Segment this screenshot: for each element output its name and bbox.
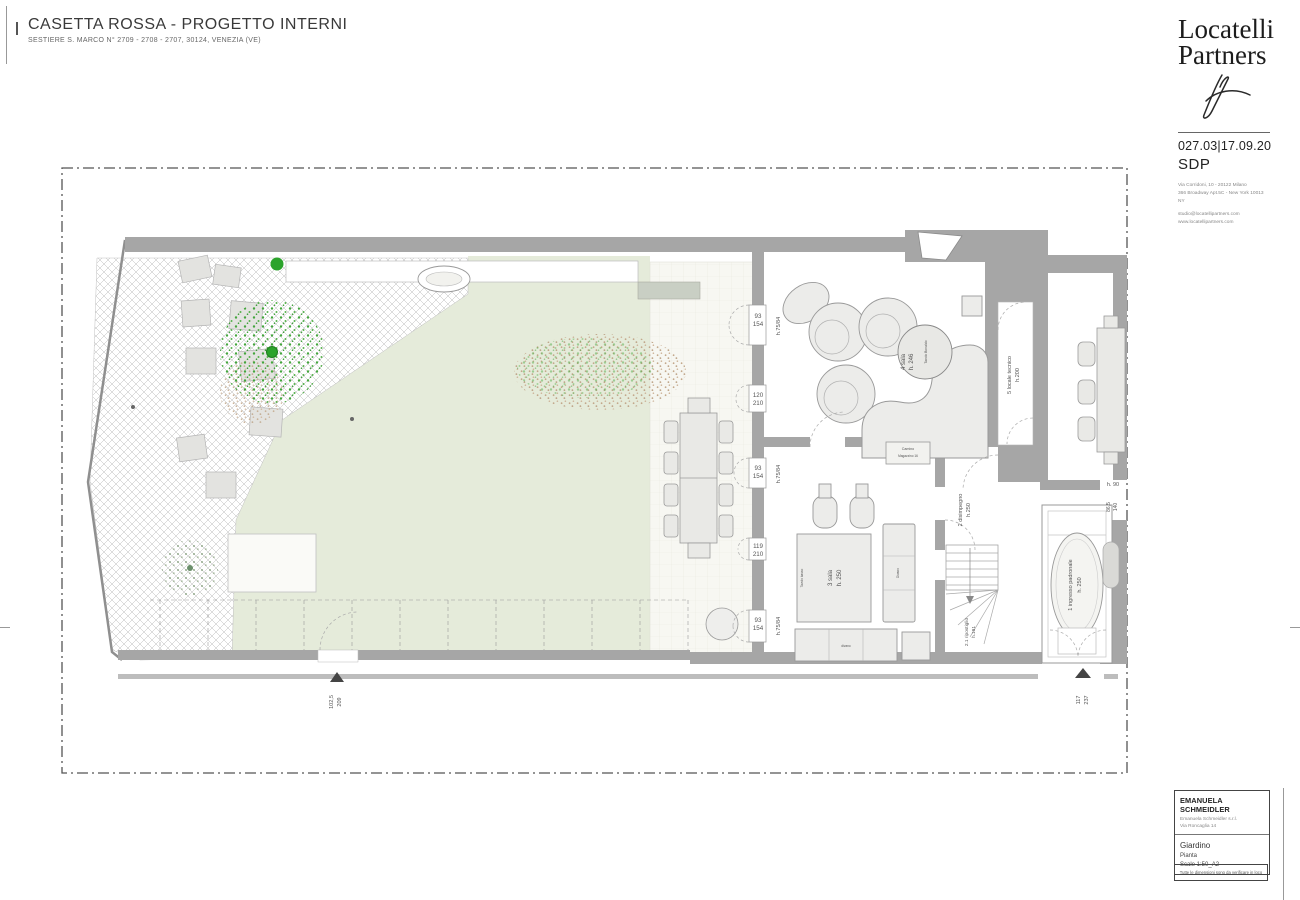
drawing-name: Giardino	[1180, 841, 1264, 850]
survey-point	[271, 258, 284, 271]
room-label-ripostiglio: 2.1 ripostiglio	[964, 618, 970, 647]
room-label-sala3: 3 sala	[828, 569, 834, 586]
dim-window: 93	[755, 313, 762, 320]
room-label-ingresso: 1 ingresso padronale	[1068, 559, 1074, 610]
client-name: EMANUELA SCHMEIDLER	[1180, 796, 1264, 814]
room-locale-tecnico: 5 locale tecnico h.200	[998, 302, 1033, 445]
planter-green	[638, 282, 700, 299]
svg-text:h. 246: h. 246	[909, 353, 915, 370]
platform	[228, 534, 316, 592]
client-company: Emanuela Schmeidler s.r.l.	[1180, 816, 1264, 823]
client-address: Via Roncaglia 14	[1180, 823, 1264, 830]
dim-door: 120	[753, 392, 764, 399]
room-east	[1078, 316, 1125, 464]
svg-text:h. 250: h. 250	[1077, 577, 1083, 592]
svg-text:209: 209	[337, 697, 343, 706]
svg-text:210: 210	[753, 400, 764, 407]
svg-text:h. 250: h. 250	[837, 569, 843, 586]
drawing-type: Pianta	[1180, 853, 1264, 859]
svg-text:93: 93	[755, 465, 762, 472]
sofa-low-label: divano	[841, 644, 851, 648]
room-ingresso: 1 ingresso padronale h. 250 h. 90 86,5 1…	[1042, 482, 1119, 705]
svg-text:237: 237	[1084, 695, 1090, 704]
svg-text:154: 154	[753, 321, 764, 328]
coffee-table-label: Tavolo basso	[800, 568, 804, 587]
entrance-arrow	[1075, 668, 1091, 678]
room-label-sala4: 4 sala	[901, 353, 907, 370]
svg-text:h.75/84: h.75/84	[776, 465, 782, 483]
post	[131, 405, 135, 409]
room-disimpegno: 2 disimpegno h.250 2.1 ripostiglio h.191	[945, 455, 998, 646]
svg-text:Magazzino 16: Magazzino 16	[898, 454, 918, 458]
title-block: EMANUELA SCHMEIDLER Emanuela Schmeidler …	[1174, 790, 1270, 875]
room-sala3: 3 sala h. 250 Tavolo basso Divano divano…	[795, 442, 930, 661]
svg-text:154: 154	[753, 625, 764, 632]
svg-text:93: 93	[755, 617, 762, 624]
svg-text:119: 119	[753, 543, 763, 550]
svg-text:Camino: Camino	[902, 447, 914, 451]
tree-small	[162, 540, 218, 596]
drawing-sheet: { "header": { "title": "CASETTA ROSSA - …	[0, 0, 1300, 900]
svg-text:210: 210	[753, 551, 764, 558]
room-sala4: Tavolo Bonaldo 4 sala h. 246	[775, 274, 988, 458]
garden	[88, 240, 755, 660]
floor-plan: 93 154 120 210 93 154 119 210 93 154 h.7…	[0, 0, 1300, 900]
dim-sill: h.75/84	[776, 317, 782, 335]
dim-h90: h. 90	[1107, 482, 1119, 488]
gate-oval-inner	[426, 272, 462, 286]
sofa-label: Divano	[896, 568, 900, 578]
planting-bed	[514, 334, 686, 410]
svg-text:h.200: h.200	[1015, 368, 1021, 382]
svg-text:102,5: 102,5	[329, 695, 335, 709]
svg-text:140: 140	[1113, 503, 1119, 512]
post	[350, 417, 354, 421]
svg-text:86,5: 86,5	[1106, 502, 1112, 512]
fireplace	[886, 442, 930, 464]
svg-text:h.191: h.191	[971, 626, 977, 638]
room-label-disimpegno: 2 disimpegno	[958, 494, 964, 527]
svg-text:h.75/84: h.75/84	[776, 617, 782, 635]
round-table-label: Tavolo Bonaldo	[924, 340, 928, 363]
svg-text:154: 154	[753, 473, 764, 480]
room-label-locale: 5 locale tecnico	[1007, 356, 1013, 394]
svg-text:117: 117	[1076, 696, 1082, 705]
svg-text:h.250: h.250	[966, 503, 972, 517]
disclaimer-note: Tutte le dimensioni sono da verificare i…	[1174, 864, 1268, 881]
